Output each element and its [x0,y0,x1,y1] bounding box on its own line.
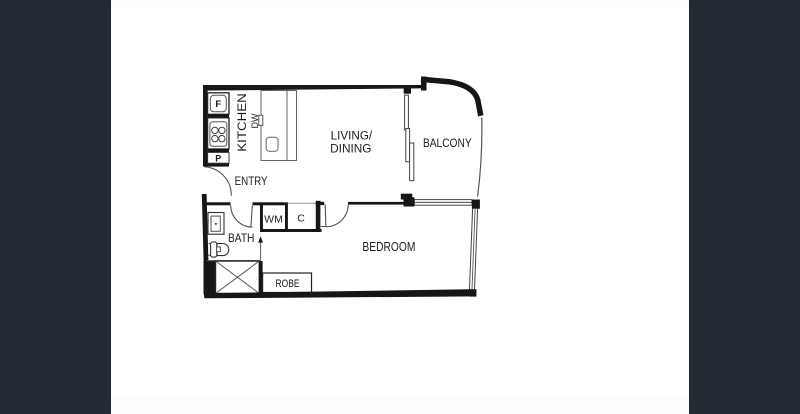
svg-text:F: F [215,99,221,110]
svg-text:C: C [297,213,305,225]
svg-text:WM: WM [264,214,283,226]
svg-text:DW: DW [250,113,261,128]
svg-text:BEDROOM: BEDROOM [362,239,415,254]
svg-text:P: P [215,154,221,164]
svg-text:BALCONY: BALCONY [423,136,472,150]
svg-text:BATH: BATH [228,231,254,245]
svg-text:DINING: DINING [330,141,371,155]
svg-text:ENTRY: ENTRY [235,175,268,188]
svg-text:KITCHEN: KITCHEN [235,93,249,152]
svg-text:ROBE: ROBE [276,278,300,290]
